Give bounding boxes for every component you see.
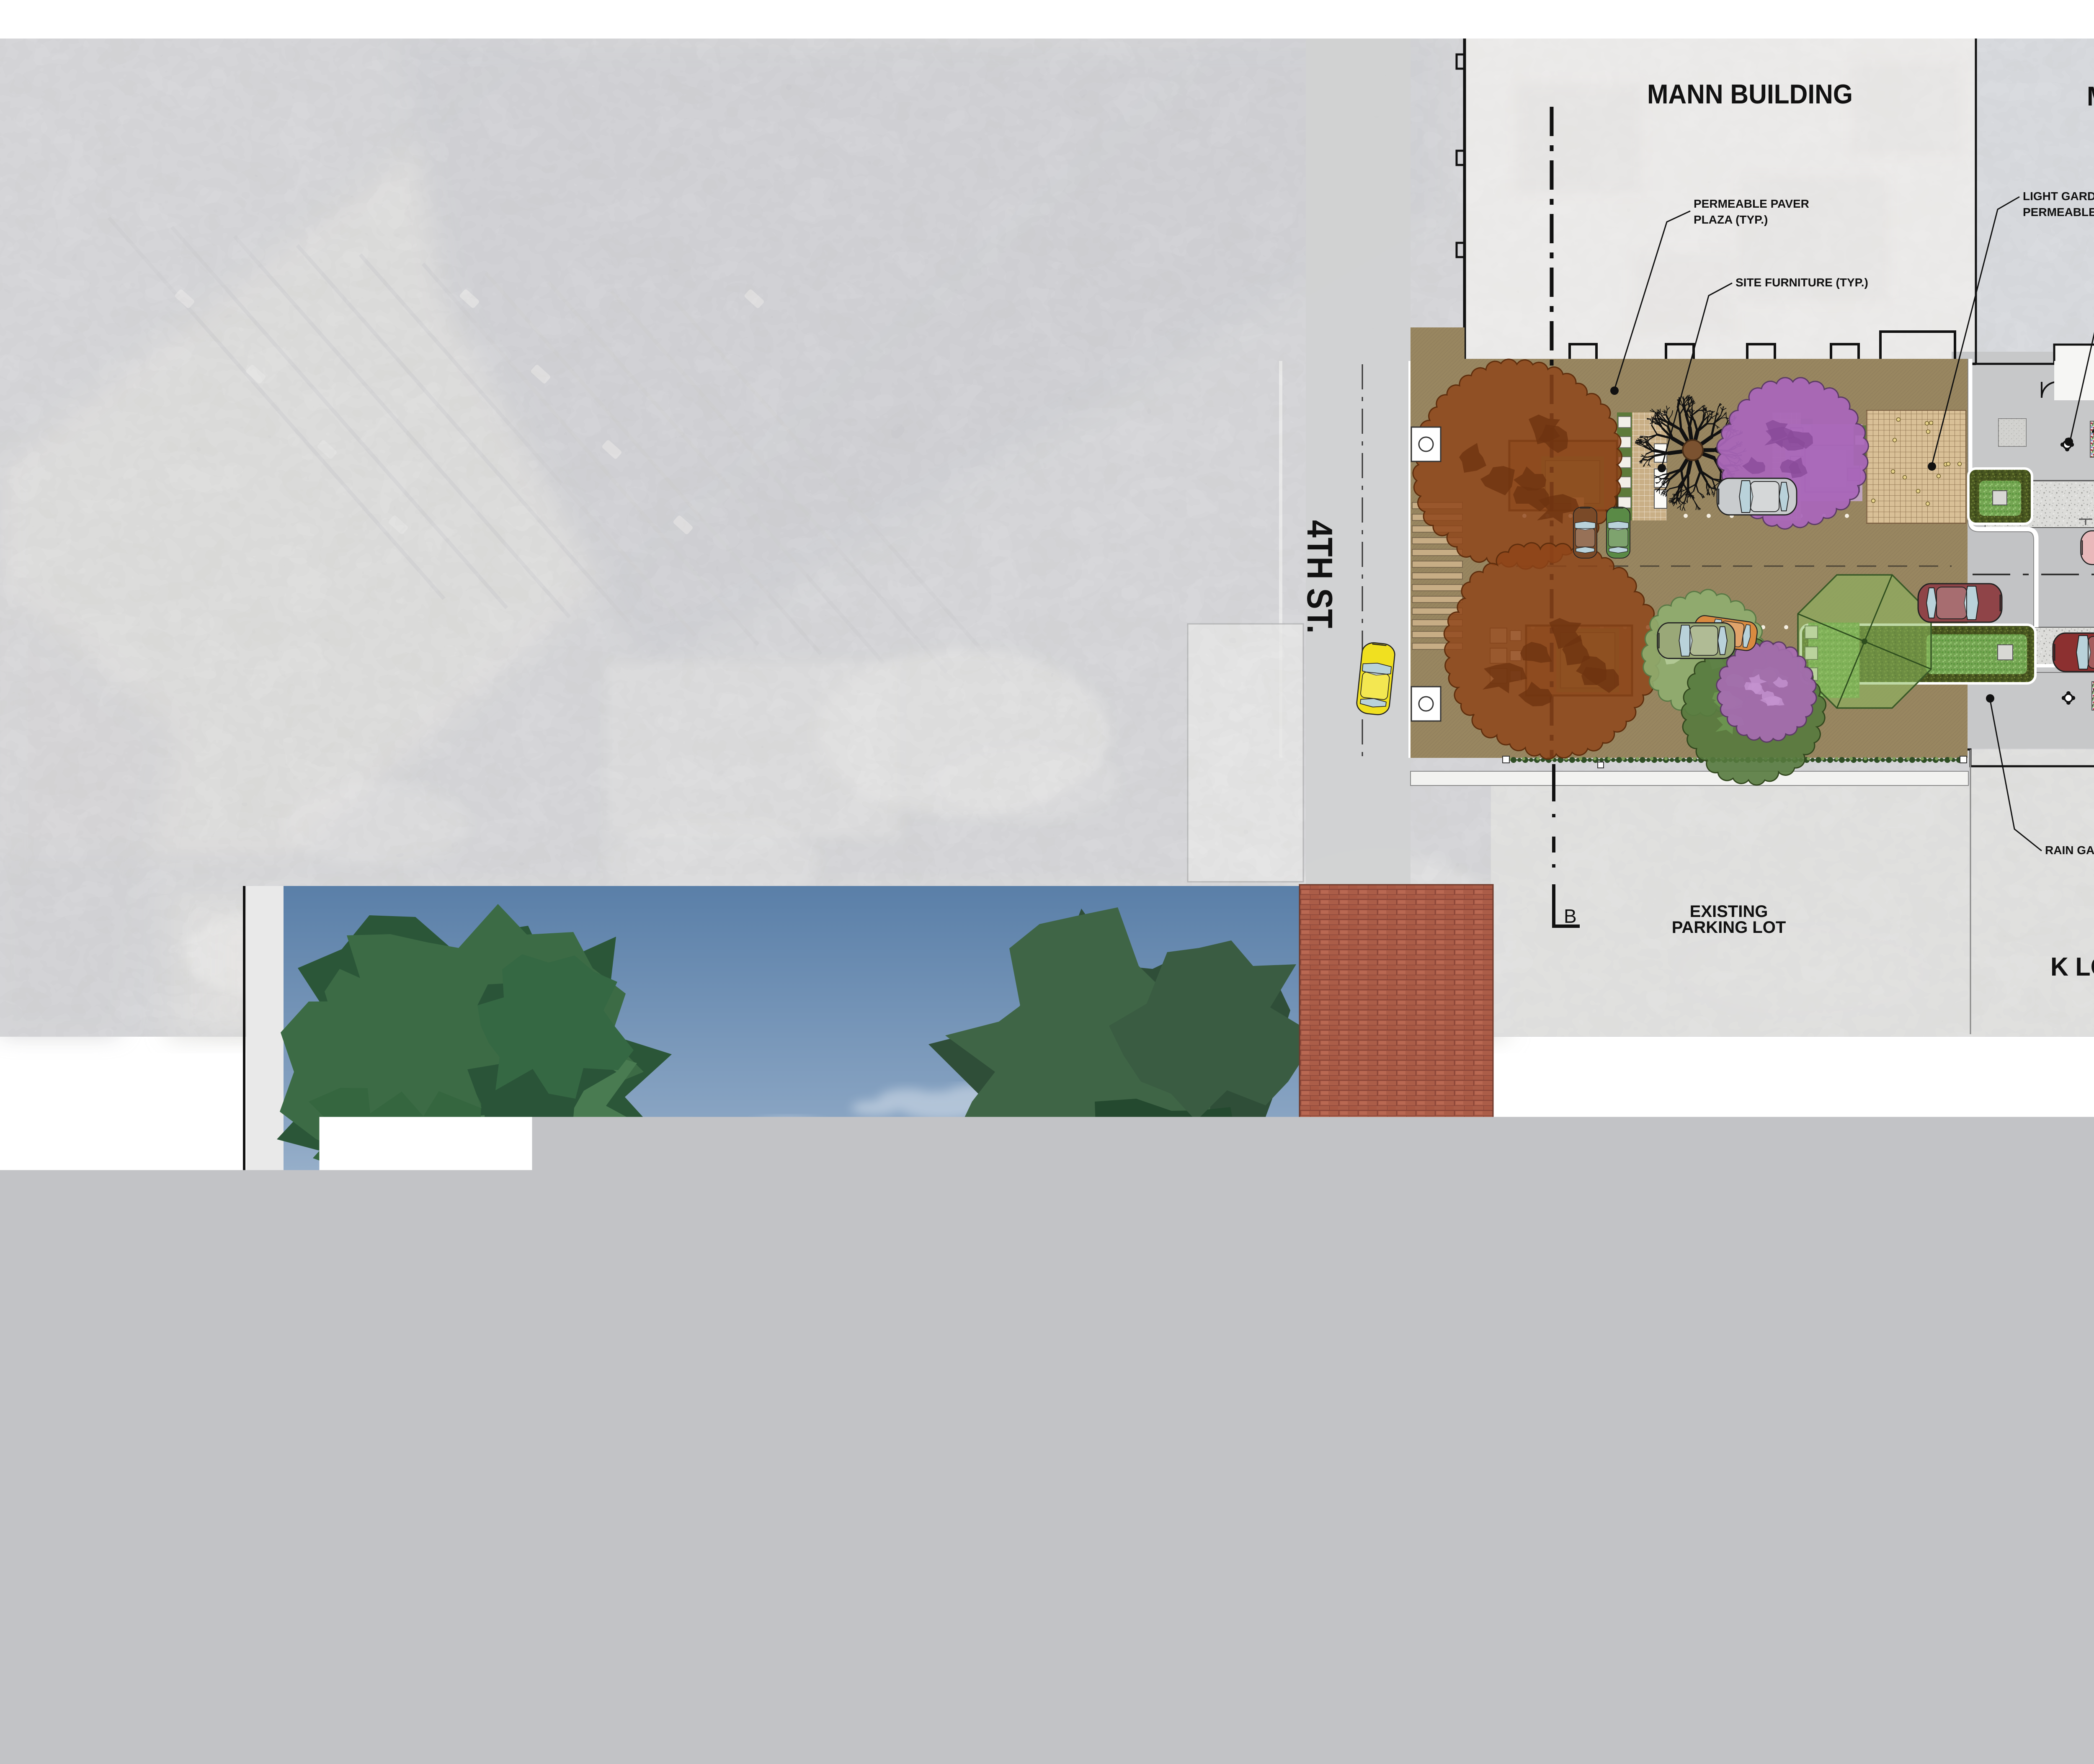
- svg-text:SECTION B: SECTION B: [206, 1674, 283, 1690]
- svg-text:EXISTING PARKING LOT: EXISTING PARKING LOT: [1524, 1643, 1662, 1656]
- svg-text:RAIN GARDEN (TYP.): RAIN GARDEN (TYP.): [119, 1295, 233, 1308]
- svg-text:DRIVE LANES: DRIVE LANES: [865, 1743, 944, 1756]
- svg-text:B: B: [1564, 905, 1577, 927]
- svg-text:MANN ANNEX: MANN ANNEX: [2087, 81, 2094, 111]
- svg-text:PERMEABLE PAVER: PERMEABLE PAVER: [1694, 197, 1809, 210]
- svg-text:®: ®: [1440, 1720, 1445, 1728]
- svg-text:Crafton Tull: Crafton Tull: [1453, 1691, 1567, 1716]
- svg-text:MANN BUILDING: MANN BUILDING: [1647, 79, 1853, 109]
- svg-text:PERMEABLE PAVERS: PERMEABLE PAVERS: [2023, 206, 2094, 219]
- svg-text:PARKING LOT: PARKING LOT: [1672, 918, 1786, 937]
- svg-text:K LOFTS: K LOFTS: [2050, 953, 2094, 981]
- svg-text:PLAZA: PLAZA: [144, 1347, 182, 1360]
- svg-text:RAIN GARDEN (TYP.): RAIN GARDEN (TYP.): [2045, 844, 2094, 857]
- svg-text:4TH ST.: 4TH ST.: [1300, 520, 1339, 633]
- svg-text:SITE FURNITURE (TYP.): SITE FURNITURE (TYP.): [1736, 276, 1868, 289]
- svg-text:MAINSTREET LITTLE ROCK: MAINSTREET LITTLE ROCK: [1756, 1678, 2094, 1714]
- svg-text:LIGHT GARDEN W/: LIGHT GARDEN W/: [2023, 190, 2094, 203]
- svg-text:PERMEABLE PAVER: PERMEABLE PAVER: [71, 1331, 182, 1344]
- svg-text:PERMEABLE PAVER: PERMEABLE PAVER: [865, 1728, 980, 1741]
- svg-text:Little Rock, Arkansas: Little Rock, Arkansas: [1825, 1714, 2041, 1738]
- svg-text:PLAZA (TYP.): PLAZA (TYP.): [1694, 213, 1768, 226]
- svg-text:SCALE: 1/4" = 1'-0": SCALE: 1/4" = 1'-0": [206, 1694, 294, 1706]
